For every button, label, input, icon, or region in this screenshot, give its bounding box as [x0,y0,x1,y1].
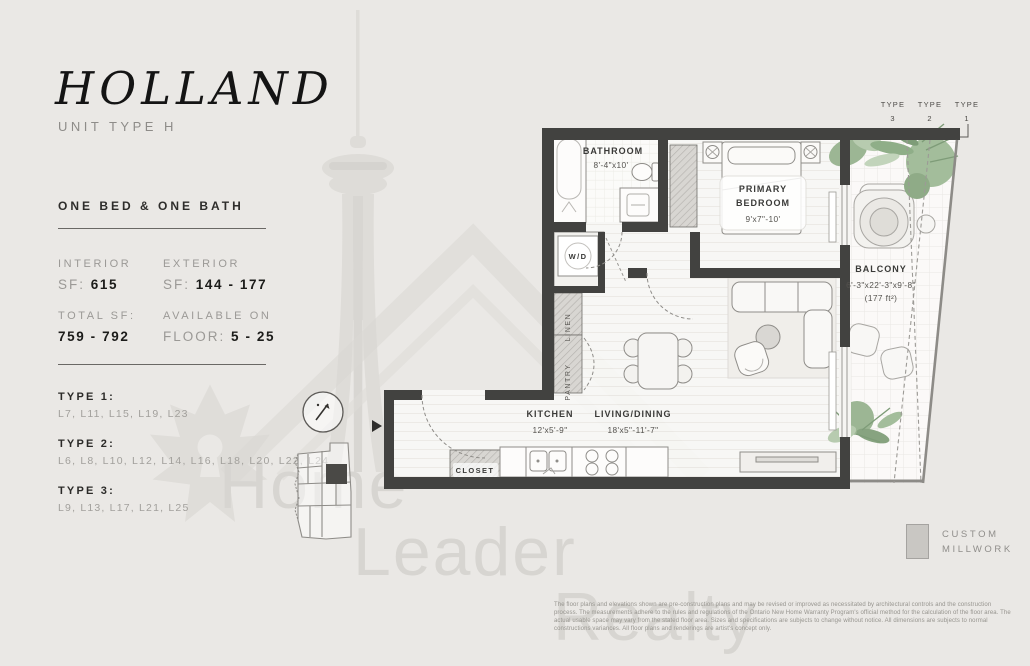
type-1-label: TYPE 1: [58,391,189,403]
balcony-type1-num: 1 [964,114,969,123]
balcony-type2-word: TYPE [918,100,942,109]
stat-available-prefix: FLOOR: [163,329,225,344]
closet-label: CLOSET [456,466,495,475]
divider-bottom [58,364,266,365]
page-title: HOLLAND [55,62,334,115]
stat-interior-prefix: SF: [58,277,85,292]
bathroom-dims: 8'-4"x10' [593,160,628,170]
balcony-type2-num: 2 [927,114,932,123]
unit-type-subtitle: UNIT TYPE H [58,119,177,134]
stat-exterior-value: SF: 144 - 177 [163,277,267,292]
millwork-legend-line1: CUSTOM [942,527,1013,542]
bedroom-dims: 9'x7"-10' [745,214,780,224]
balcony-label: BALCONY [855,264,907,274]
stat-available-number: 5 - 25 [231,329,275,344]
stat-total-value: 759 - 792 [58,329,136,344]
bed-bath-config: ONE BED & ONE BATH [58,199,244,213]
kitchen-counter [500,447,668,477]
bedroom-label-1: PRIMARY [739,184,787,194]
linen-label: LINEN [565,313,572,342]
type-3-label: TYPE 3: [58,485,190,497]
stat-available: AVAILABLE ON FLOOR: 5 - 25 [163,310,275,344]
millwork-swatch [906,524,929,559]
stat-exterior-number: 144 - 177 [196,277,267,292]
entry-arrow-icon [372,420,382,432]
sofa-chaise [804,310,832,368]
toilet-tank [652,163,659,181]
floorplan-drawing: W/D [370,90,1030,510]
pantry-label: PANTRY [565,363,572,400]
building-keyplan [278,440,366,544]
bathroom-label: BATHROOM [583,146,643,156]
type-3-block: TYPE 3: L9, L13, L17, L21, L25 [58,485,190,514]
living-dining-dims: 18'x5"-11'-7" [607,425,658,435]
balcony-type-labels: TYPE 3 TYPE 2 TYPE 1 [881,100,979,123]
bedroom-wardrobe-millwork [670,145,697,227]
stat-exterior-label: EXTERIOR [163,258,267,270]
sofa-back [732,282,832,312]
stat-available-value: FLOOR: 5 - 25 [163,329,275,344]
balcony-type1-word: TYPE [955,100,979,109]
balcony-area: (177 ft²) [865,293,898,303]
type-1-levels: L7, L11, L15, L19, L23 [58,408,189,420]
stat-total-label: TOTAL SF: [58,310,136,322]
balcony-type3-word: TYPE [881,100,905,109]
toilet [632,164,652,181]
floorplan-sheet: Home Leader Realty HOLLAND UNIT TYPE H O… [0,0,1030,666]
millwork-legend: CUSTOM MILLWORK [906,524,1013,559]
stat-available-label: AVAILABLE ON [163,310,275,322]
divider-top [58,228,266,229]
bed-pillow [728,147,795,164]
millwork-legend-line2: MILLWORK [942,542,1013,557]
balcony-type3-num: 3 [890,114,895,123]
tv [756,457,818,462]
balcony-chair [879,345,915,381]
balcony-dims: 6'-3"x22'-3"x9'-8" [846,280,916,290]
stat-interior-label: INTERIOR [58,258,131,270]
stat-total-number: 759 - 792 [58,329,129,344]
stat-interior-number: 615 [91,277,118,292]
type-3-levels: L9, L13, L17, L21, L25 [58,502,190,514]
dining-table [638,333,678,389]
compass-icon [300,389,346,435]
stat-exterior: EXTERIOR SF: 144 - 177 [163,258,267,292]
living-dining-label: LIVING/DINING [594,409,671,419]
keyplan-unit-highlight [326,464,347,484]
stat-total: TOTAL SF: 759 - 792 [58,310,136,344]
kitchen-label: KITCHEN [527,409,574,419]
stat-interior-value: SF: 615 [58,277,131,292]
disclaimer-text: The floor plans and elevations shown are… [554,601,1016,633]
bedroom-label-2: BEDROOM [736,198,790,208]
watermark-word-leader: Leader [353,513,577,591]
stat-exterior-prefix: SF: [163,277,190,292]
balcony-side-table [917,215,935,233]
type-1-block: TYPE 1: L7, L11, L15, L19, L23 [58,391,189,420]
kitchen-dims: 12'x5'-9" [532,425,567,435]
wd-label: W/D [569,252,588,261]
stat-interior: INTERIOR SF: 615 [58,258,131,292]
